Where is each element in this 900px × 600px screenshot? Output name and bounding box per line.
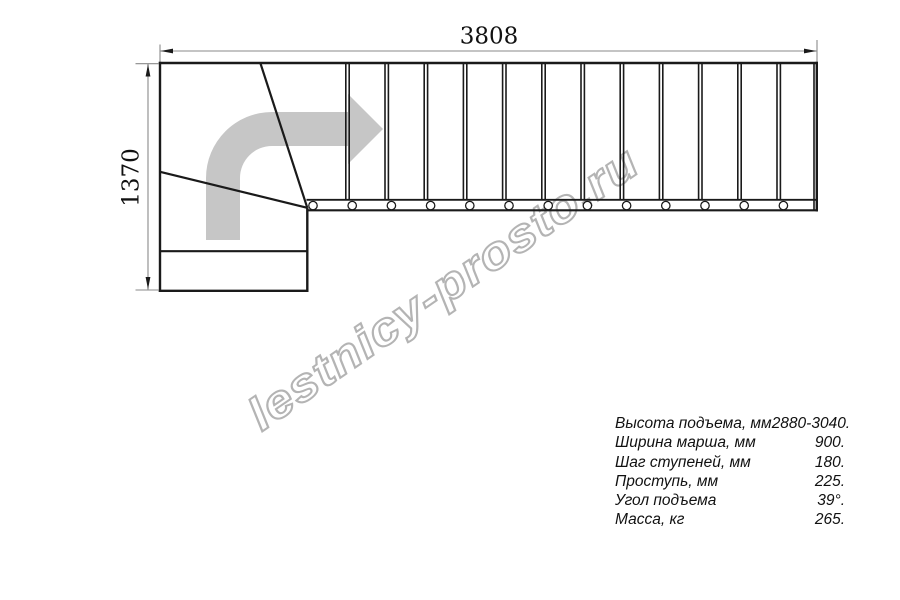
baluster-circle: [583, 201, 591, 209]
height-dimension-label: 1370: [119, 148, 145, 207]
dim-arrow-left-icon: [161, 49, 174, 54]
spec-label: Высота подъема, мм: [615, 414, 772, 433]
baluster-circle: [348, 201, 356, 209]
dim-arrow-right-icon: [804, 49, 817, 54]
spec-value: 39°.: [817, 491, 845, 510]
spec-value: 180.: [815, 453, 845, 472]
spec-row-tread-depth: Проступь, мм 225.: [615, 472, 845, 491]
baluster-circle: [387, 201, 395, 209]
balusters: [309, 201, 788, 209]
spec-row-flight-width: Ширина марша, мм 900.: [615, 433, 845, 452]
baluster-circle: [544, 201, 552, 209]
baluster-circle: [701, 201, 709, 209]
spec-row-climb-angle: Угол подъема 39°.: [615, 491, 845, 510]
dim-arrow-down-icon: [146, 277, 151, 289]
spec-row-rise-height: Высота подъема, мм 2880-3040.: [615, 414, 845, 433]
spec-value: 225.: [815, 472, 845, 491]
spec-label: Угол подъема: [615, 491, 716, 510]
width-dimension-label: 3808: [460, 24, 519, 50]
spec-value: 900.: [815, 433, 845, 452]
baluster-circle: [309, 201, 317, 209]
spec-label: Проступь, мм: [615, 472, 718, 491]
baluster-circle: [622, 201, 630, 209]
spec-label: Масса, кг: [615, 510, 684, 529]
baluster-circle: [466, 201, 474, 209]
spec-value: 265.: [815, 510, 845, 529]
spec-value: 2880-3040.: [772, 414, 850, 433]
spec-table: Высота подъема, мм 2880-3040. Ширина мар…: [615, 414, 845, 530]
baluster-circle: [505, 201, 513, 209]
spec-label: Ширина марша, мм: [615, 433, 756, 452]
baluster-circle: [426, 201, 434, 209]
spec-row-step-rise: Шаг ступеней, мм 180.: [615, 453, 845, 472]
stair-plan-drawing: lestnicy-prosto.ru: [0, 0, 900, 600]
spec-label: Шаг ступеней, мм: [615, 453, 751, 472]
dim-arrow-up-icon: [146, 64, 151, 76]
baluster-circle: [662, 201, 670, 209]
baluster-circle: [740, 201, 748, 209]
baluster-circle: [779, 201, 787, 209]
spec-row-mass: Масса, кг 265.: [615, 510, 845, 529]
